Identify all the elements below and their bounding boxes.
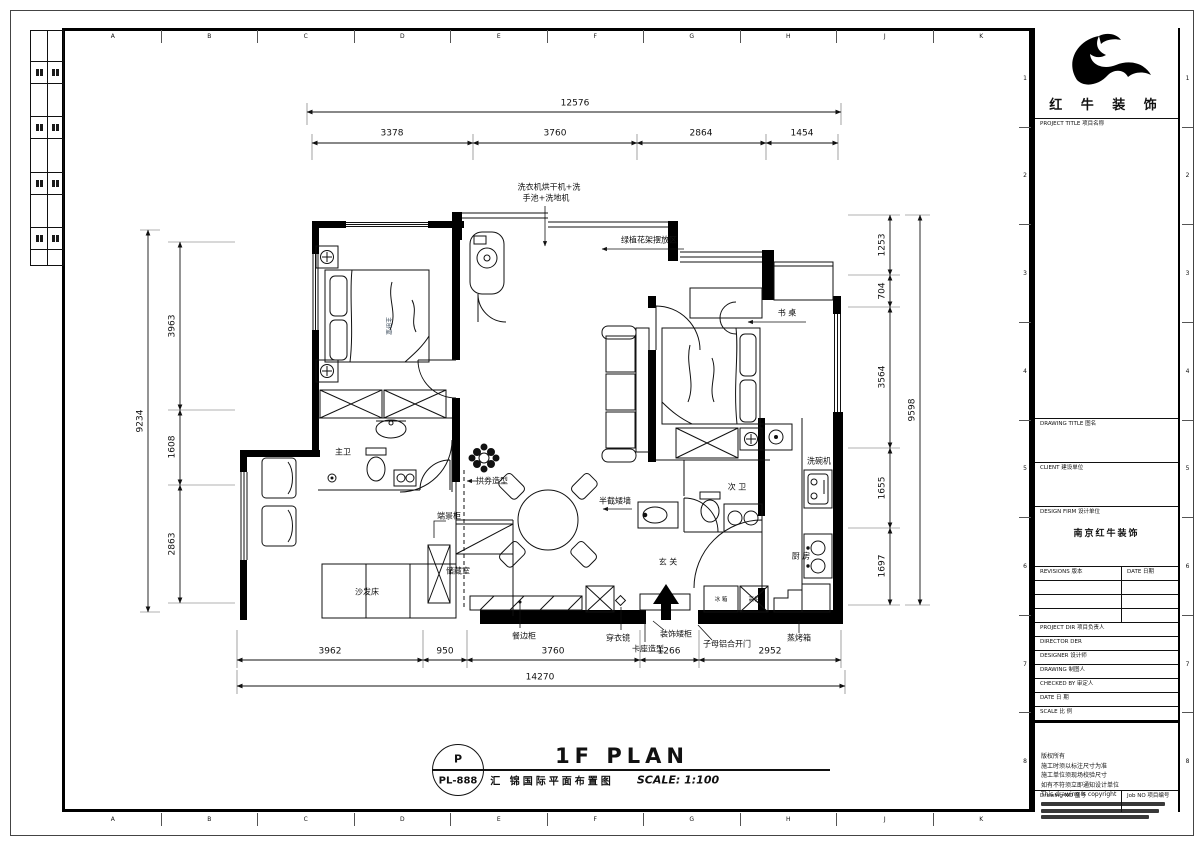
drawing-title-cn: 汇 锦国际平面布置图 <box>490 773 613 788</box>
dim-bottom-seg: 2952 <box>758 648 783 657</box>
label-kitchen: 厨 房 <box>792 551 811 560</box>
desk-and-chair <box>690 288 762 334</box>
label-laundry-line2: 手池+洗地机 <box>523 193 570 202</box>
dim-bottom-overall: 14270 <box>525 674 556 683</box>
dim-bottom-seg: 950 <box>435 648 454 657</box>
nightstand-lamp-icons <box>316 246 762 450</box>
bubble-letter: P <box>454 753 462 766</box>
plant <box>469 444 499 472</box>
drawing-by-label: DRAWING 制图人 <box>1040 668 1085 674</box>
dim-bottom-seg: 3962 <box>318 648 343 657</box>
design-firm-label: DESIGN FIRM 设计单位 <box>1040 510 1100 516</box>
client-label: CLIENT 建设单位 <box>1040 466 1083 472</box>
bed-second <box>662 328 760 424</box>
bed-master <box>325 270 429 362</box>
dim-top-overall: 12576 <box>560 100 591 109</box>
label-sofa-bed: 沙发床 <box>355 587 379 596</box>
dim-left-seg: 3963 <box>169 314 178 339</box>
dim-left-seg: 1608 <box>169 435 178 460</box>
dim-top-seg: 3760 <box>543 130 568 139</box>
company-logo <box>1055 32 1165 90</box>
label-tall-cabinet: 高柜 <box>748 597 759 603</box>
company-name: 红 牛 装 饰 <box>1035 94 1178 113</box>
label-end-view-cabinet: 端景柜 <box>437 511 461 520</box>
cad-sheet: { "sheet": { "grid_letters": ["A","B","C… <box>0 0 1200 845</box>
designer-label: DESIGNER 设计师 <box>1040 654 1087 660</box>
design-firm-value: 南京红牛装饰 <box>1035 526 1178 539</box>
label-fridge: 冰 箱 <box>715 597 728 603</box>
footer-rule <box>432 769 830 771</box>
label-master-bath: 主卫 <box>335 447 351 456</box>
label-entry-door: 子母铝合开门 <box>703 639 751 648</box>
label-deco-low-cabinet: 装饰矮柜 <box>660 629 692 638</box>
sofa-bed <box>322 564 456 618</box>
dim-right-overall: 9598 <box>909 398 918 423</box>
label-sideboard: 餐边柜 <box>512 631 536 640</box>
label-dishwasher: 洗碗机 <box>807 456 831 465</box>
dim-right-seg: 1697 <box>879 554 888 579</box>
label-master-bedroom: 主卧室 <box>384 317 391 335</box>
entry-arrow <box>653 584 679 620</box>
dim-top-seg: 3378 <box>380 130 405 139</box>
dim-right-seg: 1253 <box>879 233 888 258</box>
sofa <box>602 326 649 462</box>
label-storage-room: 储藏室 <box>446 566 470 575</box>
dim-left-seg: 2863 <box>169 532 178 557</box>
label-dressing-mirror: 穿衣镜 <box>606 633 630 642</box>
illegible-text-line <box>1041 809 1159 813</box>
dim-top-seg: 1454 <box>790 130 815 139</box>
floor-plan-drawing <box>0 0 1200 845</box>
revisions-date-label: DATE 日期 <box>1127 570 1154 576</box>
illegible-text-line <box>1041 802 1165 806</box>
project-dir-label: PROJECT DIR 项目负责人 <box>1040 626 1104 632</box>
label-bench-feature: 卡座造型 <box>632 644 664 653</box>
label-plant-rack-area: 绿植花架摆放区 <box>621 235 677 244</box>
director-label: DIRECTOR DER <box>1040 640 1082 646</box>
label-half-wall: 半截矮墙 <box>599 496 631 505</box>
drawing-no-label: Drawing NO 图号 <box>1040 794 1086 800</box>
windows <box>241 213 841 560</box>
armchairs <box>262 458 296 546</box>
date-label: DATE 日 期 <box>1040 696 1069 702</box>
drawing-scale: SCALE: 1:100 <box>637 774 719 787</box>
dim-top-seg: 2864 <box>689 130 714 139</box>
label-steam-oven: 蒸烤箱 <box>787 633 811 642</box>
dim-right-seg: 704 <box>879 281 888 300</box>
checked-by-label: CHECKED BY 审定人 <box>1040 682 1093 688</box>
dimension-extension-lines <box>140 103 930 694</box>
title-block: 红 牛 装 饰 PROJECT TITLE 项目名称 DRAWING TITLE… <box>1032 28 1180 812</box>
label-laundry-line1: 洗衣机烘干机+洗 <box>518 182 581 191</box>
dim-bottom-seg: 3760 <box>541 648 566 657</box>
scale-label: SCALE 比 例 <box>1040 710 1072 716</box>
label-entry: 玄 关 <box>659 557 678 566</box>
job-no-label: Job NO 项目编号 <box>1127 794 1169 800</box>
project-title-label: PROJECT TITLE 项目名称 <box>1040 122 1104 128</box>
dim-right-seg: 3564 <box>879 365 888 390</box>
dim-left-overall: 9234 <box>137 409 146 434</box>
label-desk: 书 桌 <box>778 308 797 317</box>
bubble-sheet-code: PL-888 <box>439 776 478 787</box>
dim-right-seg: 1655 <box>879 476 888 501</box>
drawing-title-label: DRAWING TITLE 图名 <box>1040 422 1096 428</box>
label-arch-feature: 拱券造型 <box>476 476 508 485</box>
drawing-title-en: 1F PLAN <box>555 744 689 768</box>
revisions-label: REVISIONS 版本 <box>1040 570 1082 576</box>
copyright-notes: 版权所有 施工时须以标注尺寸为准 施工单位须现场校验尺寸 如有不符须立即通知设计… <box>1041 752 1165 822</box>
label-second-bath: 次 卫 <box>728 482 747 491</box>
illegible-text-line <box>1041 815 1149 819</box>
